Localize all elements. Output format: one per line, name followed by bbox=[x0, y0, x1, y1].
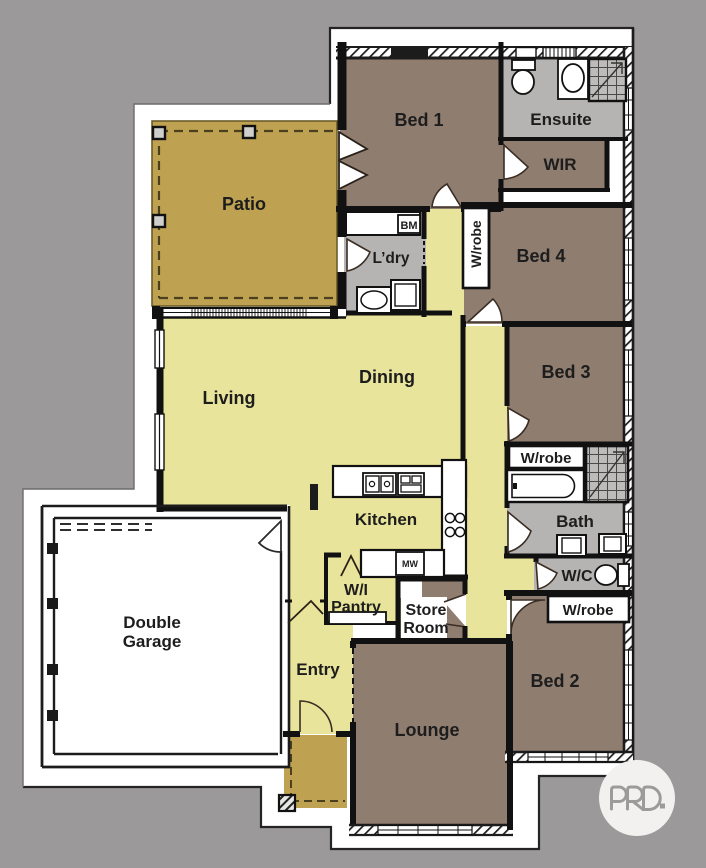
svg-text:MW: MW bbox=[402, 559, 418, 569]
svg-text:Ensuite: Ensuite bbox=[530, 110, 591, 129]
svg-text:Store: Store bbox=[406, 602, 447, 619]
svg-text:W/robe: W/robe bbox=[468, 220, 484, 268]
svg-text:Lounge: Lounge bbox=[395, 720, 460, 740]
svg-text:Bath: Bath bbox=[556, 512, 594, 531]
svg-text:Bed 3: Bed 3 bbox=[541, 362, 590, 382]
svg-text:W/C: W/C bbox=[561, 568, 593, 585]
svg-text:Garage: Garage bbox=[123, 632, 182, 651]
svg-text:Entry: Entry bbox=[296, 660, 340, 679]
svg-text:L’dry: L’dry bbox=[372, 250, 409, 267]
svg-text:W/robe: W/robe bbox=[563, 602, 614, 619]
svg-text:WIR: WIR bbox=[543, 155, 576, 174]
svg-text:Pantry: Pantry bbox=[331, 599, 381, 616]
svg-text:Double: Double bbox=[123, 613, 181, 632]
svg-text:Bed 1: Bed 1 bbox=[394, 110, 443, 130]
svg-text:BM: BM bbox=[400, 220, 417, 232]
svg-text:Dining: Dining bbox=[359, 367, 415, 387]
svg-text:W/I: W/I bbox=[344, 582, 368, 599]
svg-text:Room: Room bbox=[403, 620, 448, 637]
svg-text:Bed 2: Bed 2 bbox=[530, 671, 579, 691]
svg-text:Bed 4: Bed 4 bbox=[516, 246, 565, 266]
svg-text:Living: Living bbox=[203, 388, 256, 408]
svg-text:Patio: Patio bbox=[222, 194, 266, 214]
svg-text:Kitchen: Kitchen bbox=[355, 510, 417, 529]
svg-text:W/robe: W/robe bbox=[521, 450, 572, 467]
